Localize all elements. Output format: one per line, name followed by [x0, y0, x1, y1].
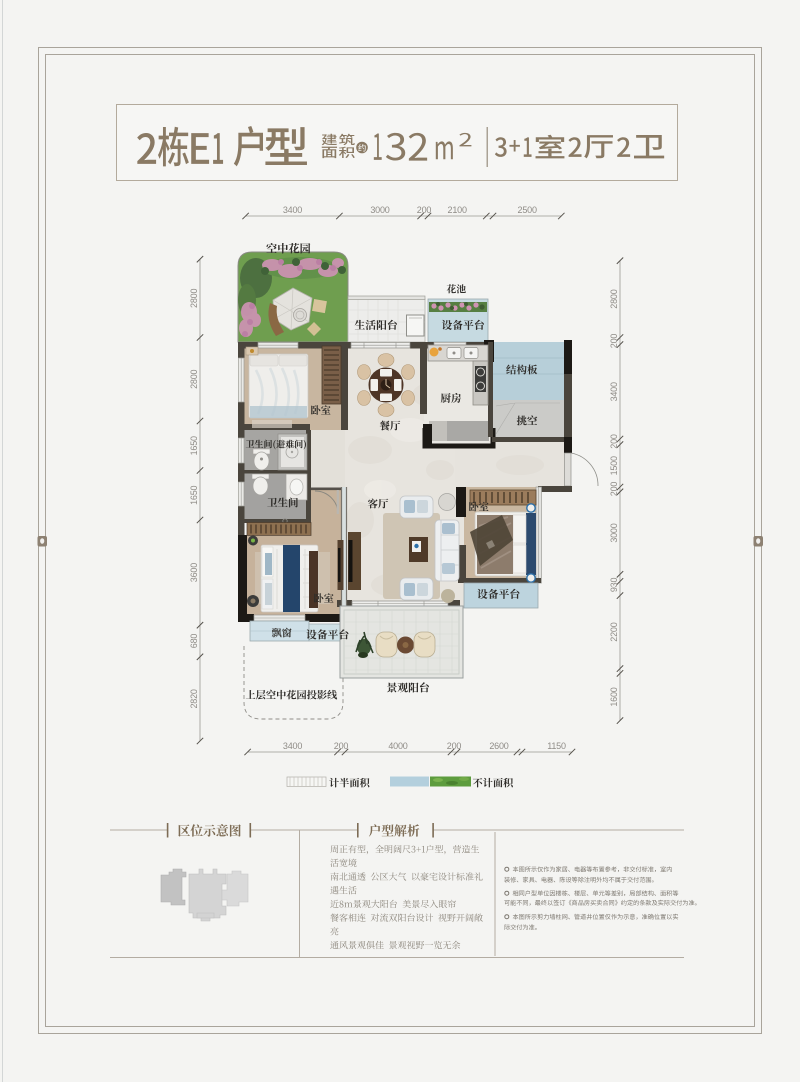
svg-text:4000: 4000 — [388, 741, 407, 751]
svg-text:2600: 2600 — [489, 741, 508, 751]
svg-text:3600: 3600 — [189, 563, 199, 582]
svg-text:3000: 3000 — [609, 523, 619, 542]
svg-text:200: 200 — [609, 482, 619, 497]
svg-text:1650: 1650 — [189, 436, 199, 455]
svg-text:200: 200 — [334, 741, 349, 751]
svg-text:2500: 2500 — [518, 205, 537, 215]
svg-text:200: 200 — [609, 434, 619, 449]
svg-text:1650: 1650 — [189, 485, 199, 504]
svg-text:2800: 2800 — [189, 289, 199, 308]
svg-text:2200: 2200 — [609, 622, 619, 641]
svg-text:2100: 2100 — [448, 205, 467, 215]
svg-text:200: 200 — [447, 741, 462, 751]
svg-text:2820: 2820 — [189, 689, 199, 708]
svg-text:3400: 3400 — [283, 205, 302, 215]
svg-text:200: 200 — [609, 334, 619, 349]
svg-text:1600: 1600 — [609, 687, 619, 706]
svg-text:1150: 1150 — [547, 741, 566, 751]
svg-text:3400: 3400 — [283, 741, 302, 751]
svg-text:680: 680 — [189, 634, 199, 649]
svg-text:3000: 3000 — [370, 205, 389, 215]
svg-text:930: 930 — [609, 578, 619, 593]
svg-text:200: 200 — [417, 205, 432, 215]
svg-text:2800: 2800 — [189, 369, 199, 388]
svg-text:1500: 1500 — [609, 456, 619, 475]
svg-text:2800: 2800 — [609, 289, 619, 308]
svg-text:3400: 3400 — [609, 382, 619, 401]
